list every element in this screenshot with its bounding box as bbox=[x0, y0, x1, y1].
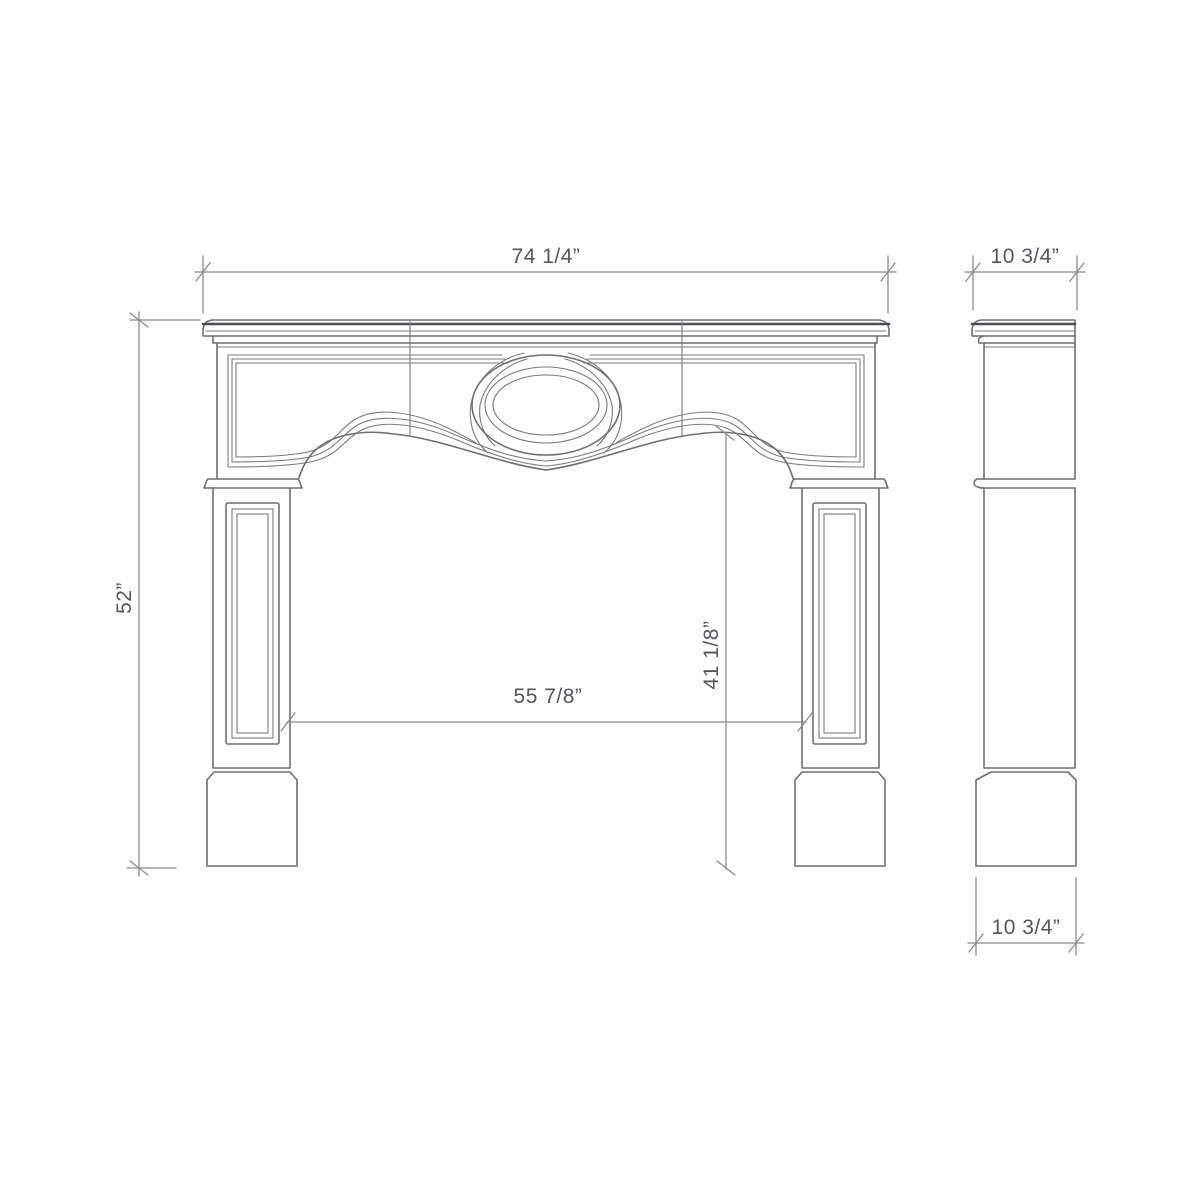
opening-width-value: 55 7/8” bbox=[514, 685, 583, 708]
side-body bbox=[974, 343, 1076, 866]
mantel-half-left bbox=[204, 321, 546, 866]
mantel-half-right bbox=[546, 321, 888, 866]
overall-height-value: 52” bbox=[113, 582, 136, 614]
front-elevation bbox=[203, 320, 889, 866]
dimension-opening-width: 55 7/8” bbox=[281, 685, 812, 731]
depth-top-value: 10 3/4” bbox=[991, 245, 1060, 268]
dimension-overall-width: 74 1/4” bbox=[195, 245, 896, 313]
overall-width-value: 74 1/4” bbox=[512, 245, 581, 268]
side-elevation bbox=[972, 320, 1076, 866]
dimension-depth-top: 10 3/4” bbox=[965, 245, 1085, 310]
center-medallion bbox=[472, 355, 620, 455]
mantel-dimension-drawing: 74 1/4” 10 3/4” 52” 55 7/8” 41 1/8” 10 3 bbox=[0, 0, 1200, 1200]
drawing-canvas: 74 1/4” 10 3/4” 52” 55 7/8” 41 1/8” 10 3 bbox=[0, 0, 1200, 1200]
side-shelf bbox=[972, 320, 1075, 343]
depth-bottom-value: 10 3/4” bbox=[992, 916, 1061, 939]
opening-height-value: 41 1/8” bbox=[700, 621, 723, 690]
dimension-overall-height: 52” bbox=[113, 312, 200, 876]
side-plinth bbox=[976, 772, 1076, 866]
dimension-depth-bottom: 10 3/4” bbox=[968, 878, 1084, 955]
mantel-shelf bbox=[203, 320, 889, 343]
dimension-opening-height: 41 1/8” bbox=[700, 426, 735, 875]
